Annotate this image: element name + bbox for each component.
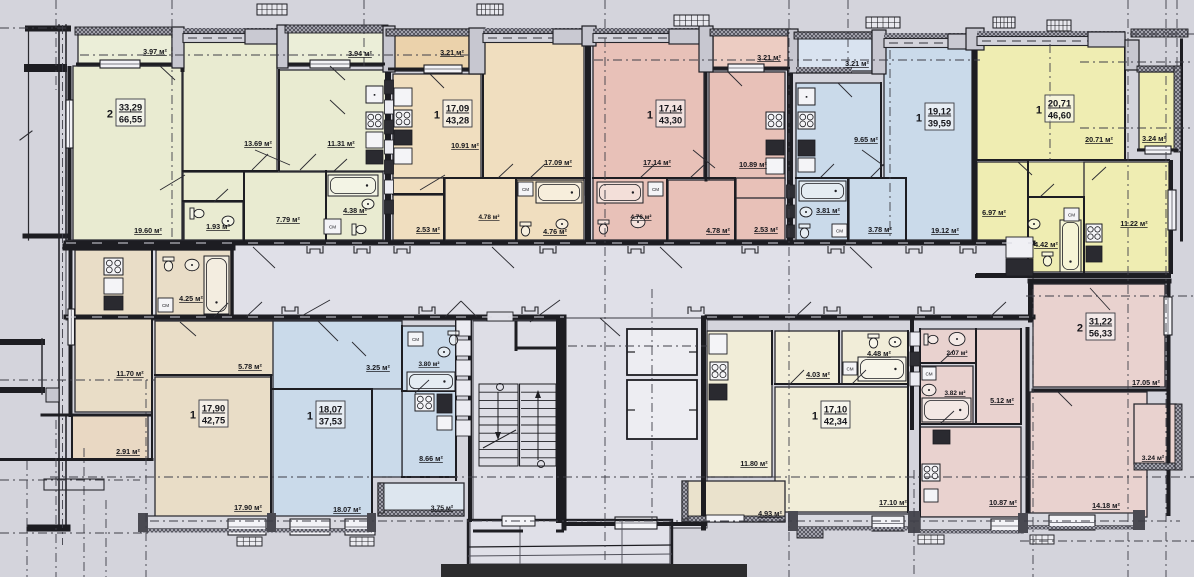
svg-text:37,53: 37,53	[319, 417, 342, 427]
svg-text:18,07: 18,07	[319, 405, 342, 415]
svg-text:СМ: СМ	[329, 225, 336, 230]
svg-text:17.09 м²: 17.09 м²	[544, 158, 572, 167]
svg-text:5.78 м²: 5.78 м²	[238, 362, 262, 371]
svg-text:3.21 м²: 3.21 м²	[845, 59, 869, 68]
svg-text:1: 1	[916, 113, 922, 125]
svg-text:3.97 м²: 3.97 м²	[143, 47, 167, 56]
svg-text:4.76 м²: 4.76 м²	[543, 227, 567, 236]
svg-text:43,30: 43,30	[659, 116, 682, 126]
svg-text:42,34: 42,34	[824, 417, 848, 427]
svg-text:3.24 м²: 3.24 м²	[1142, 455, 1165, 462]
svg-text:4.38 м²: 4.38 м²	[343, 206, 367, 215]
svg-text:66,55: 66,55	[119, 115, 142, 125]
svg-text:42,75: 42,75	[202, 416, 225, 426]
svg-text:1: 1	[307, 411, 313, 423]
svg-text:3.81 м²: 3.81 м²	[816, 206, 840, 215]
svg-text:20.71 м²: 20.71 м²	[1085, 135, 1113, 144]
svg-text:3.78 м²: 3.78 м²	[868, 225, 892, 234]
svg-text:11.22 м²: 11.22 м²	[1120, 219, 1148, 228]
svg-text:2.91 м²: 2.91 м²	[116, 447, 140, 456]
svg-text:8.66 м²: 8.66 м²	[419, 454, 443, 463]
svg-text:39,59: 39,59	[928, 119, 951, 129]
svg-text:1: 1	[1036, 105, 1042, 117]
svg-text:2.07 м²: 2.07 м²	[946, 350, 967, 357]
svg-text:4.25 м²: 4.25 м²	[179, 294, 203, 303]
svg-text:4.48 м²: 4.48 м²	[867, 349, 891, 358]
svg-text:10.89 м²: 10.89 м²	[739, 160, 767, 169]
svg-text:17,90: 17,90	[202, 404, 225, 414]
svg-text:17.90 м²: 17.90 м²	[234, 503, 262, 512]
svg-text:11.80 м²: 11.80 м²	[740, 459, 768, 468]
svg-text:19.12 м²: 19.12 м²	[931, 226, 959, 235]
svg-text:19.60 м²: 19.60 м²	[134, 226, 162, 235]
svg-text:СМ: СМ	[1068, 213, 1075, 218]
svg-text:3.21 м²: 3.21 м²	[757, 53, 781, 62]
svg-text:СМ: СМ	[925, 372, 932, 377]
svg-text:4.78 м²: 4.78 м²	[706, 226, 730, 235]
svg-text:6.97 м²: 6.97 м²	[982, 208, 1006, 217]
svg-text:17.14 м²: 17.14 м²	[643, 158, 671, 167]
svg-text:19,12: 19,12	[928, 107, 951, 117]
svg-text:4.03 м²: 4.03 м²	[806, 370, 830, 379]
svg-text:СМ: СМ	[522, 187, 529, 192]
svg-text:4.78 м²: 4.78 м²	[478, 214, 499, 221]
svg-text:17,14: 17,14	[659, 104, 683, 114]
svg-text:56,33: 56,33	[1089, 329, 1112, 339]
svg-text:СМ: СМ	[412, 337, 419, 342]
svg-text:СМ: СМ	[836, 229, 843, 234]
svg-text:▪: ▪	[373, 92, 375, 99]
svg-text:7.79 м²: 7.79 м²	[276, 215, 300, 224]
svg-text:СМ: СМ	[846, 367, 853, 372]
svg-text:13.69 м²: 13.69 м²	[244, 139, 272, 148]
svg-text:3.24 м²: 3.24 м²	[1142, 134, 1166, 143]
svg-text:14.18 м²: 14.18 м²	[1092, 501, 1120, 510]
svg-text:20,71: 20,71	[1048, 99, 1071, 109]
svg-text:3.75 м²: 3.75 м²	[431, 505, 454, 512]
svg-text:10.87 м²: 10.87 м²	[989, 498, 1017, 507]
svg-text:3.21 м²: 3.21 м²	[440, 48, 464, 57]
svg-text:43,28: 43,28	[446, 116, 469, 126]
svg-text:2: 2	[107, 109, 113, 121]
svg-text:1: 1	[812, 411, 818, 423]
svg-text:11.70 м²: 11.70 м²	[116, 369, 144, 378]
svg-text:17,09: 17,09	[446, 104, 469, 114]
svg-text:46,60: 46,60	[1048, 111, 1071, 121]
svg-text:3.80 м²: 3.80 м²	[418, 361, 439, 368]
svg-text:СМ: СМ	[652, 187, 659, 192]
svg-text:9.65 м²: 9.65 м²	[854, 135, 878, 144]
svg-text:4.42 м²: 4.42 м²	[1034, 240, 1058, 249]
svg-text:1: 1	[647, 110, 653, 122]
svg-text:4.93 м²: 4.93 м²	[758, 509, 782, 518]
svg-text:31,22: 31,22	[1089, 317, 1112, 327]
svg-text:11.31 м²: 11.31 м²	[327, 139, 355, 148]
svg-text:4.76 м²: 4.76 м²	[630, 214, 651, 221]
svg-text:3.25 м²: 3.25 м²	[366, 363, 390, 372]
svg-text:3.82 м²: 3.82 м²	[944, 390, 965, 397]
svg-text:1: 1	[434, 110, 440, 122]
svg-text:▪: ▪	[805, 94, 807, 101]
svg-text:10.91 м²: 10.91 м²	[451, 141, 479, 150]
svg-text:17.05 м²: 17.05 м²	[1132, 378, 1160, 387]
svg-text:2.53 м²: 2.53 м²	[754, 225, 778, 234]
svg-text:2: 2	[1077, 323, 1083, 335]
svg-text:5.12 м²: 5.12 м²	[990, 396, 1014, 405]
svg-text:СМ: СМ	[162, 303, 169, 308]
svg-text:17,10: 17,10	[824, 405, 847, 415]
svg-text:1.93 м²: 1.93 м²	[206, 222, 230, 231]
svg-text:2.53 м²: 2.53 м²	[416, 225, 440, 234]
svg-text:3.94 м²: 3.94 м²	[348, 49, 372, 58]
svg-text:33,29: 33,29	[119, 103, 142, 113]
svg-text:1: 1	[190, 410, 196, 422]
svg-text:17.10 м²: 17.10 м²	[879, 498, 907, 507]
svg-text:18.07 м²: 18.07 м²	[333, 505, 361, 514]
